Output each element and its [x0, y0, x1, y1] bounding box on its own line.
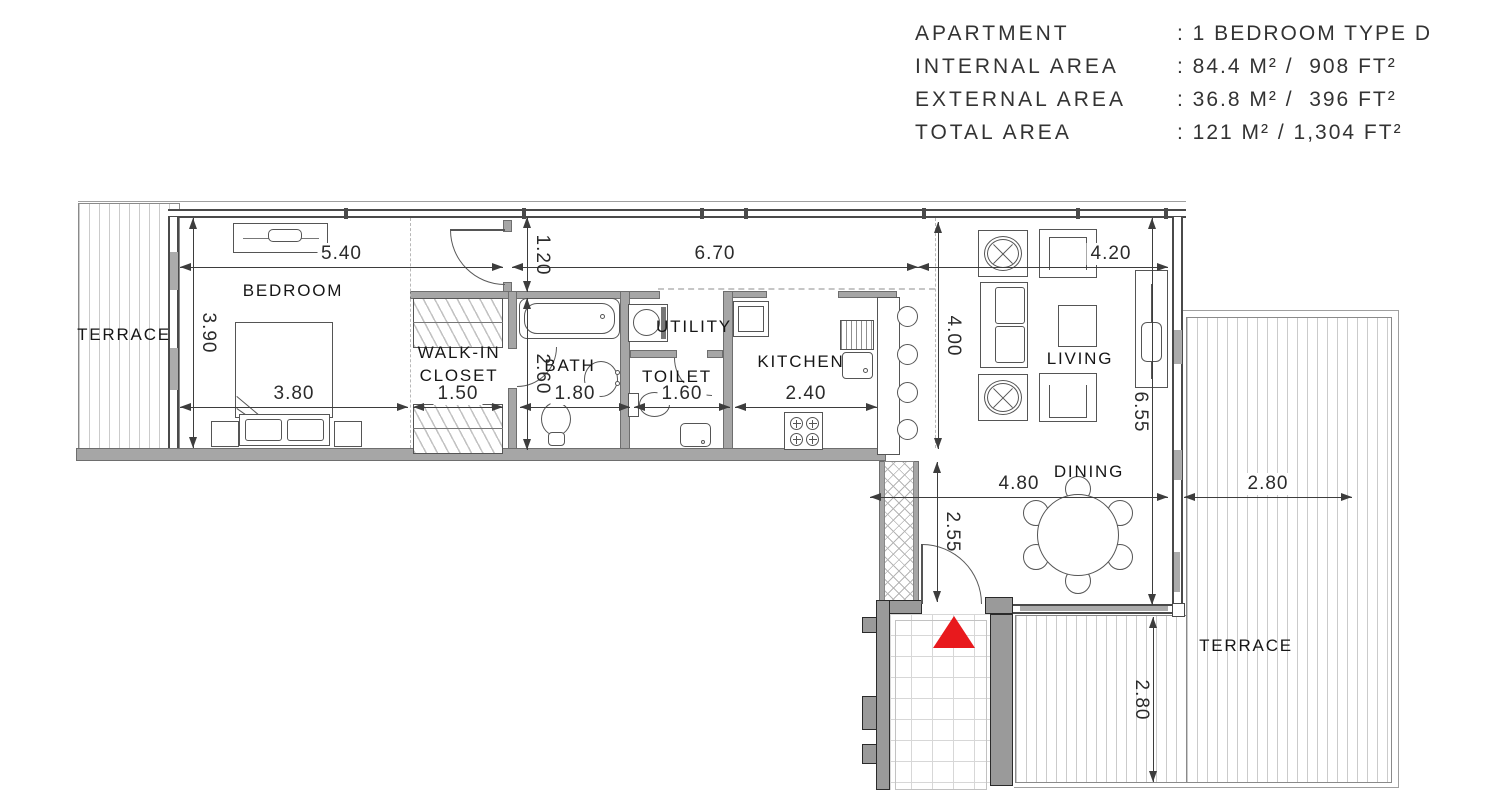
- dim-bedroom-width: 5.40: [180, 267, 503, 268]
- shaft-hatch: [884, 461, 914, 604]
- wall-tab: [862, 696, 877, 730]
- terrace-outer-line-top: [1183, 310, 1399, 311]
- wall-utility-toilet-right: [707, 350, 723, 358]
- bar-stool: [897, 306, 918, 327]
- dashed-boundary-bedroom: [410, 218, 411, 448]
- dashed-ceiling-line: [658, 288, 935, 290]
- terrace-outer-line-right: [1398, 310, 1399, 788]
- pillow: [287, 419, 324, 441]
- entrance-door-arc: [922, 544, 982, 604]
- room-label-living: LIVING: [1047, 349, 1114, 369]
- armchair-cushion: [1049, 385, 1087, 418]
- bar-stool: [897, 344, 918, 365]
- window-mullion: [1076, 208, 1080, 219]
- wardrobe-rail: [413, 322, 503, 323]
- terrace-right-lower-hatch: [1015, 615, 1187, 783]
- legend-row-total-area: TOTAL AREA : 121 M² / 1,304 FT²: [915, 121, 1455, 145]
- sink-drain: [863, 368, 868, 373]
- terrace-right-hatch: [1186, 317, 1392, 783]
- armchair-cushion: [1049, 237, 1087, 270]
- stove-burner: [790, 417, 803, 430]
- dim-bed-width: 3.80: [180, 407, 408, 408]
- dim-kitchen-width: 2.40: [735, 407, 877, 408]
- faucet-dot: [701, 440, 705, 444]
- bar-stool: [897, 419, 918, 440]
- toilet-sink: [680, 423, 711, 447]
- bedroom-door-leaf: [450, 229, 505, 231]
- bathtub-drain: [600, 314, 605, 319]
- faucet-dot: [615, 370, 620, 375]
- wall-closet-right-upper: [508, 291, 517, 349]
- toilet-base: [548, 432, 565, 446]
- sofa-cushion: [995, 287, 1025, 324]
- wall-toilet-kitchen: [723, 291, 733, 452]
- legend-label: INTERNAL AREA: [915, 55, 1177, 79]
- bar-stool: [897, 382, 918, 403]
- window-mullion: [744, 208, 748, 219]
- legend-value: : 84.4 M² / 908 FT²: [1177, 55, 1397, 79]
- stove-burner: [806, 417, 819, 430]
- room-label-dining: DINING: [1054, 462, 1124, 482]
- dim-hall-length: 6.70: [512, 267, 918, 268]
- room-label-terrace-left: TERRACE: [77, 325, 171, 345]
- dim-bath-height: 2.60: [527, 298, 528, 450]
- legend-value: : 121 M² / 1,304 FT²: [1177, 121, 1403, 145]
- stove: [784, 412, 823, 450]
- legend-label: APARTMENT: [915, 22, 1177, 46]
- wall-closet-right-lower: [508, 388, 517, 452]
- dim-living-height: 6.55: [1152, 218, 1153, 605]
- window-sill: [170, 252, 178, 290]
- tv-on-dresser: [268, 229, 302, 242]
- dim-dining-width: 4.80: [870, 497, 1168, 498]
- room-label-bedroom: BEDROOM: [243, 281, 343, 301]
- legend-label: EXTERNAL AREA: [915, 88, 1177, 112]
- window-sill: [170, 348, 178, 390]
- fridge-inner: [738, 306, 764, 332]
- entrance-door-leaf: [921, 544, 923, 604]
- dim-living-depth: 4.00: [938, 222, 939, 449]
- entrance-marker: [933, 616, 975, 648]
- window-sill: [1020, 606, 1168, 611]
- dim-bedroom-height: 3.90: [193, 218, 194, 448]
- window-mullion: [700, 208, 704, 219]
- floor-plan: APARTMENT : 1 BEDROOM TYPE D INTERNAL AR…: [0, 0, 1500, 793]
- dim-closet-width: 1.50: [413, 407, 503, 408]
- dim-bath-width: 1.80: [520, 407, 630, 408]
- wall-tab: [862, 617, 877, 633]
- window-sill: [1174, 552, 1180, 592]
- dim-dining-height: 2.55: [937, 462, 938, 602]
- pillow: [245, 419, 282, 441]
- dim-terrace-width: 2.80: [1184, 497, 1352, 498]
- legend: APARTMENT : 1 BEDROOM TYPE D INTERNAL AR…: [915, 22, 1455, 145]
- entrance-wall-right: [990, 614, 1013, 786]
- entrance-wall-top-right: [985, 597, 1013, 614]
- room-label-walk-in-closet: WALK-IN CLOSET: [418, 341, 501, 387]
- floor-lamp: [978, 374, 1028, 421]
- terrace-outer-line-bottom: [1014, 787, 1399, 788]
- coffee-table: [1058, 305, 1097, 347]
- legend-row-external-area: EXTERNAL AREA : 36.8 M² / 396 FT²: [915, 88, 1455, 112]
- room-label-kitchen: KITCHEN: [757, 352, 844, 372]
- stove-burner: [790, 433, 803, 446]
- window-mullion: [344, 208, 348, 219]
- dim-toilet-width: 1.60: [634, 407, 730, 408]
- window-mullion: [1164, 208, 1168, 219]
- legend-value: : 36.8 M² / 396 FT²: [1177, 88, 1397, 112]
- legend-label: TOTAL AREA: [915, 121, 1177, 145]
- stove-burner: [806, 433, 819, 446]
- nightstand: [334, 421, 362, 447]
- wall-tab: [862, 744, 877, 764]
- faucet-dot: [615, 381, 620, 386]
- wall-utility-toilet-left: [630, 350, 677, 358]
- wall-corner-post: [1172, 603, 1185, 617]
- dim-hall-width: 1.20: [527, 217, 528, 292]
- kitchen-sink: [842, 352, 873, 379]
- window-sill: [1174, 450, 1182, 480]
- kitchen-drainer: [840, 320, 874, 350]
- window-sill: [1174, 330, 1182, 364]
- legend-row-internal-area: INTERNAL AREA : 84.4 M² / 908 FT²: [915, 55, 1455, 79]
- room-label-terrace-right: TERRACE: [1199, 636, 1293, 656]
- legend-row-apartment: APARTMENT : 1 BEDROOM TYPE D: [915, 22, 1455, 46]
- dashed-boundary-living: [935, 218, 936, 448]
- window-wall-top: [168, 209, 1186, 218]
- entrance-wall-left: [876, 600, 890, 790]
- window-mullion: [922, 208, 926, 219]
- floor-lamp: [978, 230, 1028, 277]
- outer-roof-line: [78, 201, 1186, 202]
- legend-value: : 1 BEDROOM TYPE D: [1177, 22, 1432, 46]
- wardrobe: [413, 404, 503, 454]
- dim-living-width: 4.20: [918, 267, 1168, 268]
- closet-label-line1: WALK-IN: [418, 341, 501, 364]
- room-label-utility: UTILITY: [656, 317, 732, 337]
- nightstand: [211, 421, 239, 447]
- wardrobe-rail: [413, 428, 503, 429]
- sofa-cushion: [995, 326, 1025, 363]
- dining-table: [1037, 494, 1119, 576]
- dim-terrace-height: 2.80: [1153, 617, 1154, 782]
- bedroom-door-arc: [450, 230, 505, 285]
